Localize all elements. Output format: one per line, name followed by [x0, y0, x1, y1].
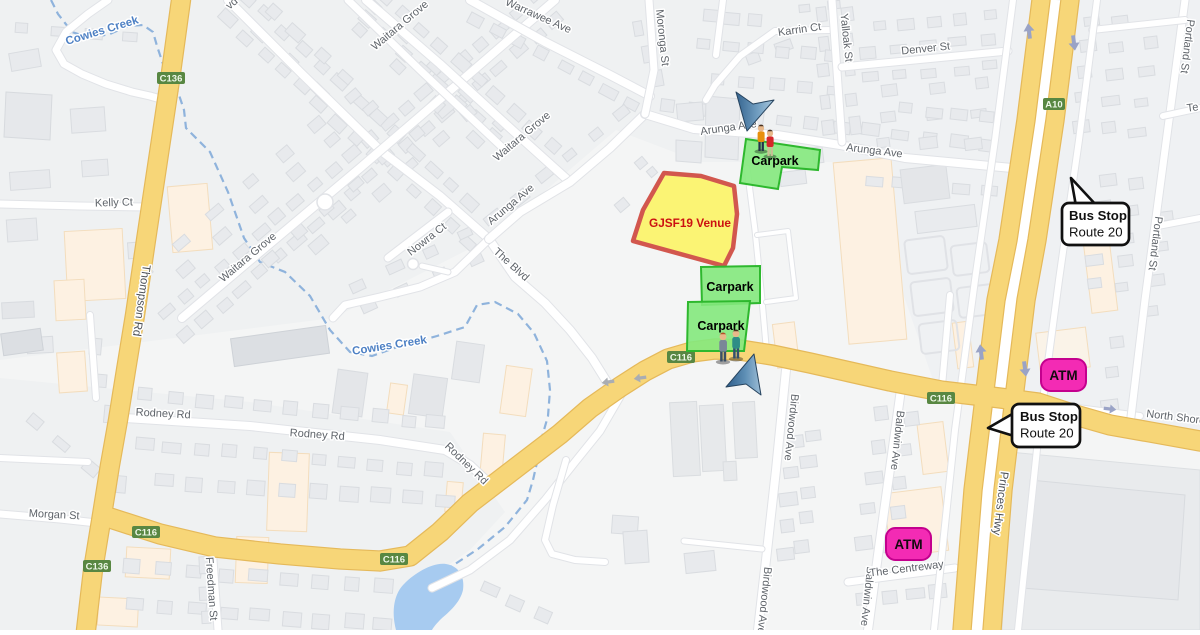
svg-text:Kelly Ct: Kelly Ct [95, 196, 133, 209]
svg-text:ATM: ATM [894, 537, 922, 552]
svg-text:Carpark: Carpark [706, 280, 753, 294]
svg-text:C116: C116 [670, 352, 692, 363]
svg-text:Route 20: Route 20 [1069, 225, 1123, 240]
svg-text:Bus Stop: Bus Stop [1020, 409, 1078, 424]
svg-text:A10: A10 [1045, 99, 1062, 110]
svg-text:Route 20: Route 20 [1020, 426, 1074, 441]
svg-text:C136: C136 [160, 73, 183, 84]
svg-text:C116: C116 [135, 527, 157, 538]
svg-text:C116: C116 [383, 554, 405, 565]
svg-text:GJSF19 Venue: GJSF19 Venue [649, 216, 731, 230]
svg-text:C136: C136 [86, 561, 109, 572]
svg-text:Bus Stop: Bus Stop [1069, 208, 1127, 223]
svg-text:C116: C116 [930, 393, 952, 404]
svg-text:ATM: ATM [1049, 368, 1077, 383]
svg-text:Te: Te [1186, 101, 1199, 115]
